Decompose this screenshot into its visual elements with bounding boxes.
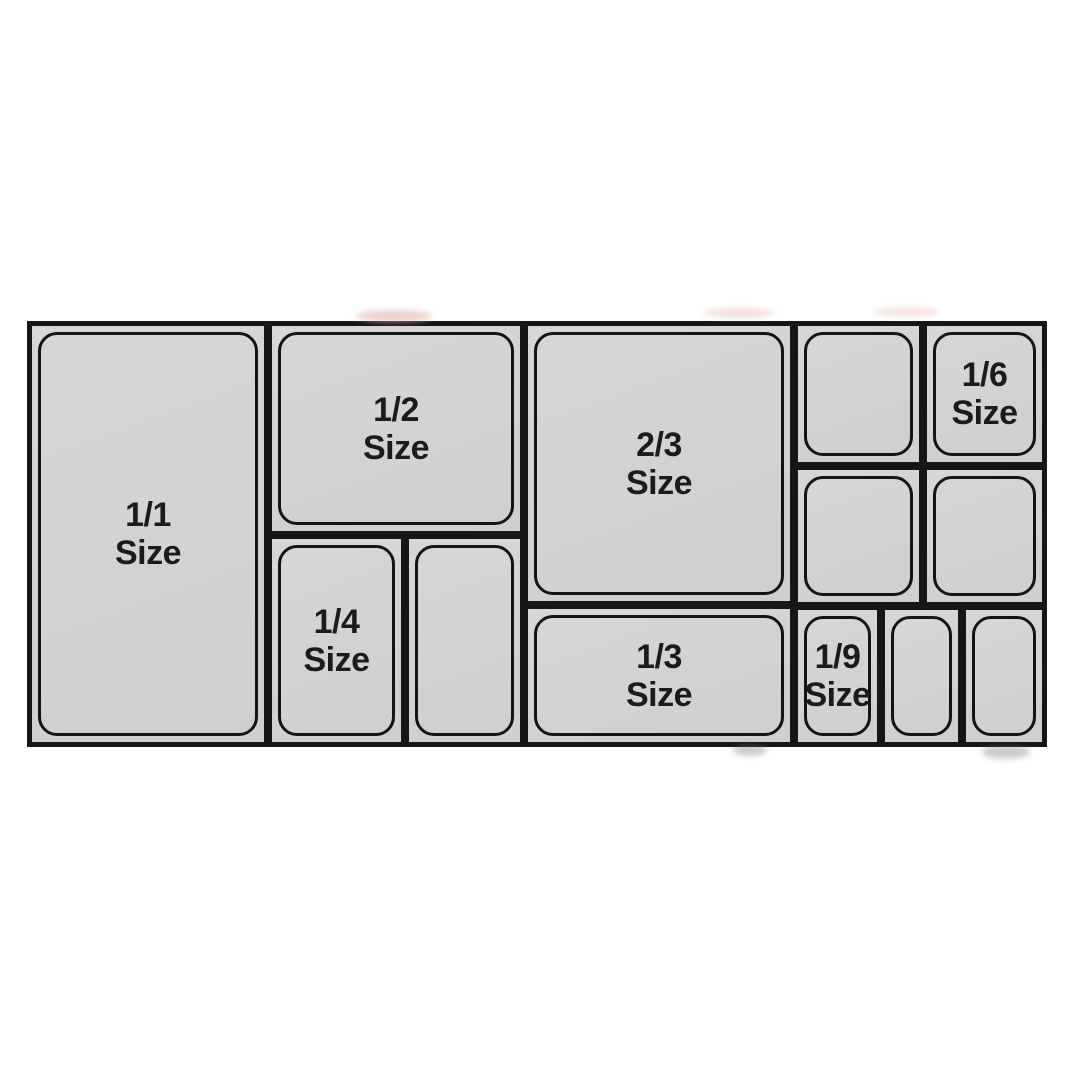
pan-1-6: 1/6 Size [923, 322, 1046, 466]
pan-label-1-3: 1/3 Size [626, 638, 692, 714]
pan-1-3: 1/3 Size [524, 605, 794, 746]
pan-2-3: 2/3 Size [524, 322, 794, 605]
pan-1-4-unlabeled [405, 535, 524, 746]
pan-label-2-3: 2/3 Size [626, 426, 692, 502]
pan-1-9-unlabeled-2 [962, 606, 1046, 746]
pan-1-6-unlabeled-2 [794, 466, 923, 606]
pan-label-1-2: 1/2 Size [363, 391, 429, 467]
photo-artifact [982, 745, 1030, 759]
photo-artifact [703, 308, 775, 318]
pan-1-2: 1/2 Size [268, 322, 524, 535]
pan-inner-outline [891, 616, 952, 736]
pan-1-6-unlabeled-1 [794, 322, 923, 466]
pan-1-6-unlabeled-3 [923, 466, 1046, 606]
pan-inner-outline [972, 616, 1036, 736]
photo-artifact [874, 307, 938, 317]
pan-inner-outline [415, 545, 514, 736]
pan-1-1: 1/1 Size [28, 322, 268, 746]
pan-label-1-4: 1/4 Size [303, 603, 369, 679]
pan-1-9-unlabeled-1 [881, 606, 962, 746]
pan-inner-outline [804, 476, 913, 596]
pan-inner-outline [804, 332, 913, 456]
gastronorm-size-diagram: 1/1 Size 1/2 Size 1/4 Size 2/3 Size 1/3 … [27, 321, 1047, 747]
pan-label-1-1: 1/1 Size [115, 496, 181, 572]
pan-inner-outline [933, 476, 1036, 596]
pan-label-1-6: 1/6 Size [951, 356, 1017, 432]
pan-1-9: 1/9 Size [794, 606, 881, 746]
pan-label-1-9: 1/9 Size [804, 638, 870, 714]
pan-1-4: 1/4 Size [268, 535, 405, 746]
